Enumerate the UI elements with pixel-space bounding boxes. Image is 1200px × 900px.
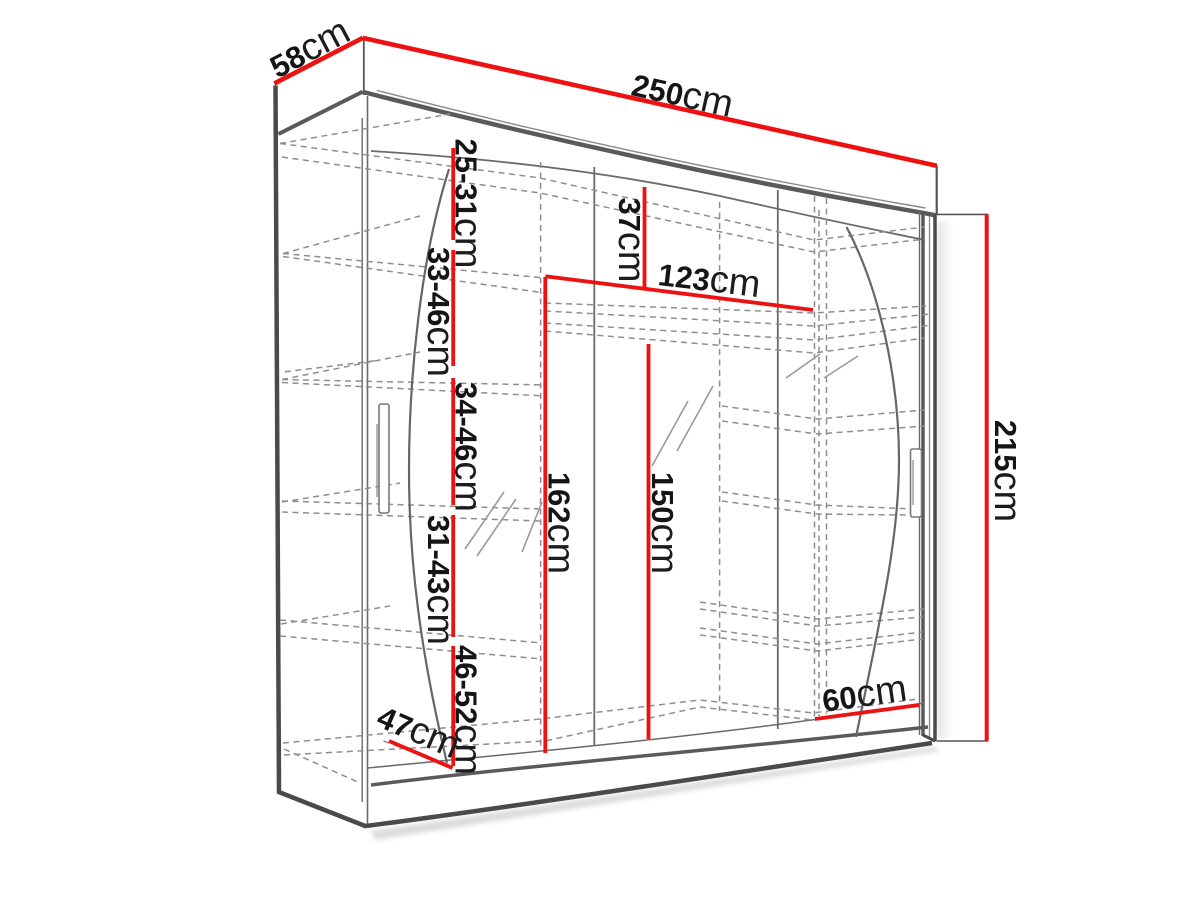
svg-text:150cm: 150cm xyxy=(643,472,685,574)
svg-text:34-46cm: 34-46cm xyxy=(447,382,489,512)
svg-text:162cm: 162cm xyxy=(540,472,582,574)
svg-text:215cm: 215cm xyxy=(986,420,1028,522)
svg-text:33-46cm: 33-46cm xyxy=(419,247,461,377)
svg-text:31-43cm: 31-43cm xyxy=(419,515,461,645)
svg-text:37cm: 37cm xyxy=(610,197,652,282)
